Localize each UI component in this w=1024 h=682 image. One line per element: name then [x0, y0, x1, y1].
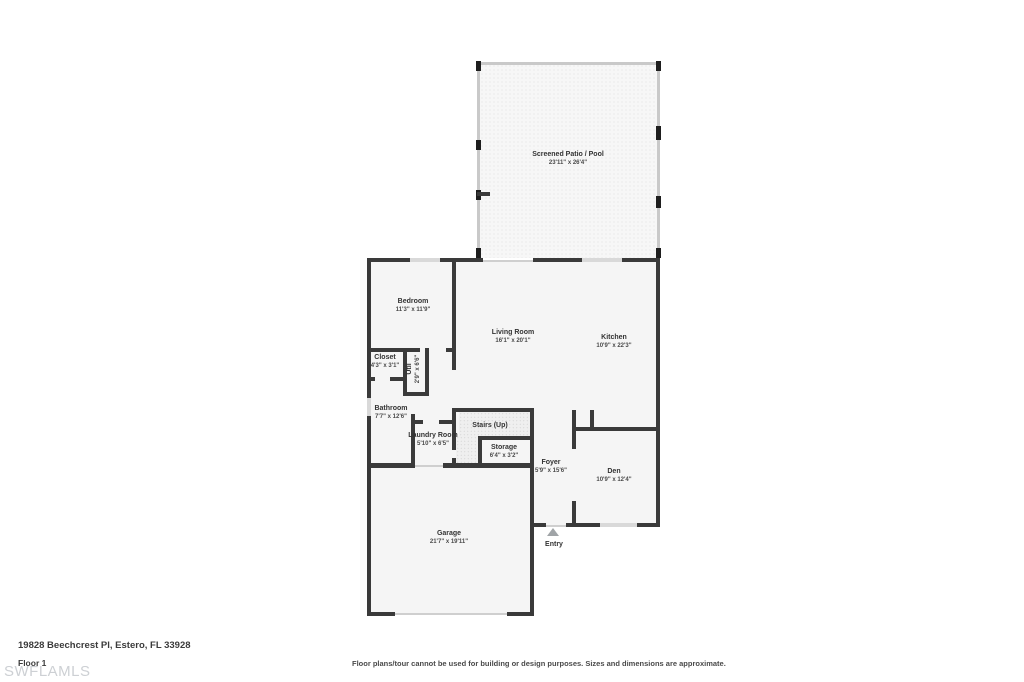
room-label-entry: Entry: [545, 541, 563, 549]
wall: [530, 408, 534, 616]
wall: [440, 258, 483, 262]
address-text: 19828 Beechcrest Pl, Estero, FL 33928: [18, 640, 191, 651]
wall: [367, 377, 375, 381]
room-label-stairs: Stairs (Up): [472, 422, 507, 430]
wall: [478, 436, 534, 440]
room-label-bedroom: Bedroom 11'3" x 11'9": [396, 298, 431, 314]
mls-watermark: SWFLAMLS: [4, 663, 91, 680]
wall: [533, 258, 582, 262]
room-label-living-room: Living Room 16'1" x 20'1": [492, 329, 534, 345]
screen-post: [656, 196, 661, 208]
screen-post: [656, 248, 661, 258]
wall: [572, 410, 576, 427]
wall: [403, 392, 429, 396]
wall: [390, 377, 407, 381]
wall: [572, 501, 576, 525]
wall: [455, 408, 534, 412]
wall: [446, 348, 456, 352]
wall: [425, 348, 429, 396]
screen-post: [476, 248, 481, 258]
wall: [622, 258, 660, 262]
wall: [572, 431, 576, 449]
room-label-storage: Storage 6'4" x 3'2": [490, 444, 519, 460]
wall: [452, 258, 456, 370]
stairs-hatch: [456, 436, 478, 463]
room-label-laundry: Laundry Room 5'10" x 6'5": [408, 432, 457, 448]
wall: [590, 410, 594, 427]
room-label-kitchen: Kitchen 10'9" x 22'3": [596, 334, 631, 350]
wall: [443, 463, 534, 468]
wall: [367, 416, 371, 616]
wall: [367, 348, 420, 352]
wall: [367, 612, 395, 616]
window: [367, 398, 371, 416]
screen-post: [476, 61, 481, 71]
room-label-bathroom: Bathroom 7'7" x 12'6": [374, 405, 407, 421]
door-opening: [483, 260, 533, 262]
window: [600, 523, 637, 527]
floorplan-canvas: Screened Patio / Pool 23'11" x 26'4" Bed…: [0, 0, 1024, 682]
room-label-garage: Garage 21'7" x 19'11": [430, 530, 468, 546]
wall: [477, 192, 490, 196]
window: [582, 258, 622, 262]
window: [410, 258, 440, 262]
door-opening: [546, 525, 566, 527]
wall: [367, 463, 415, 468]
wall: [411, 420, 423, 424]
door-opening: [415, 465, 443, 467]
screen-wall: [477, 62, 480, 258]
disclaimer-text: Floor plans/tour cannot be used for buil…: [352, 659, 726, 668]
entry-arrow-icon: [547, 528, 559, 536]
room-label-patio: Screened Patio / Pool 23'11" x 26'4": [532, 151, 604, 167]
room-label-den: Den 10'9" x 12'4": [596, 468, 631, 484]
wall: [656, 258, 660, 527]
screen-post: [476, 140, 481, 150]
screen-post: [656, 126, 661, 140]
screen-wall: [477, 62, 660, 65]
screen-post: [656, 61, 661, 71]
screen-wall: [657, 62, 660, 258]
room-label-closet: Closet 4'3" x 3'1": [371, 354, 400, 370]
door-opening: [395, 613, 507, 615]
room-label-util: Util 2'9" x 6'6": [406, 355, 422, 384]
wall: [637, 523, 660, 527]
room-label-foyer: Foyer 5'9" x 15'6": [535, 459, 567, 475]
wall: [572, 427, 660, 431]
wall: [367, 258, 410, 262]
